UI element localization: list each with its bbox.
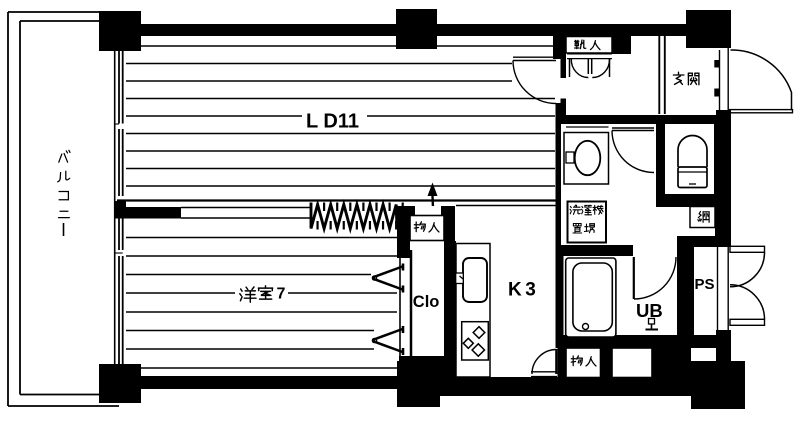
svg-text:PS: PS <box>695 276 715 293</box>
svg-text:K3: K3 <box>508 280 539 301</box>
svg-text:7: 7 <box>277 286 286 303</box>
svg-text:Clo: Clo <box>413 293 440 311</box>
svg-text:L D11: L D11 <box>306 111 359 133</box>
